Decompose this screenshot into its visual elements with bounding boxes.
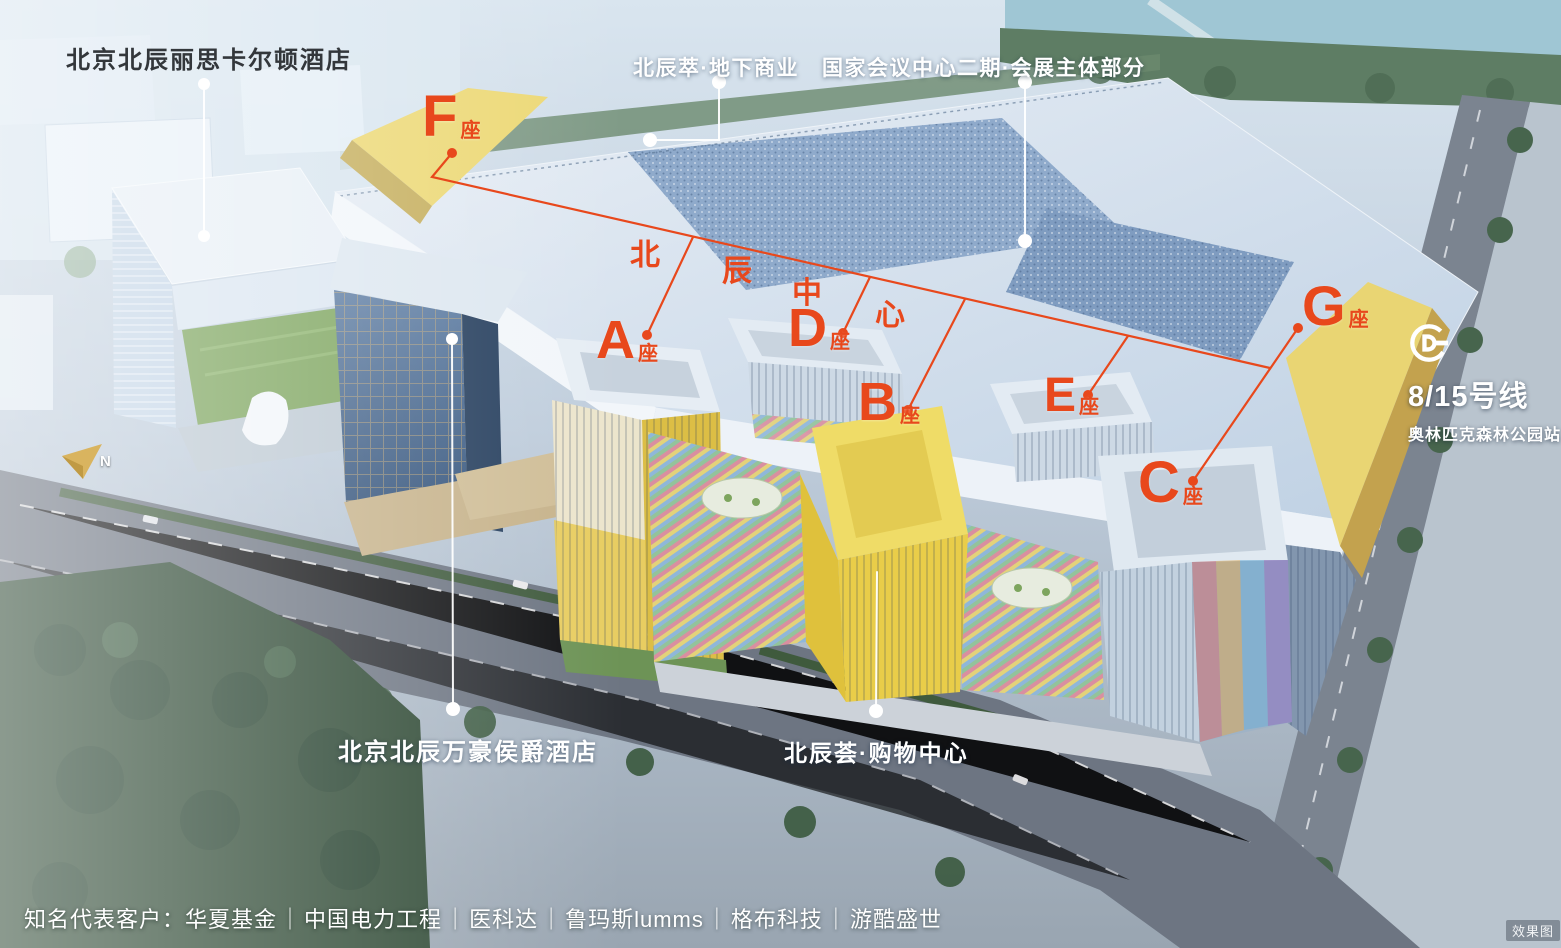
client-name: 格布科技	[731, 907, 823, 932]
building-letter-c: C	[1138, 458, 1180, 507]
subway-line: 8/15号线	[1408, 373, 1561, 415]
building-label-f: F 座	[422, 92, 480, 141]
client-separator: ｜	[444, 907, 467, 932]
label-shopping-mall: 北辰荟·购物中心	[784, 734, 969, 768]
client-separator: ｜	[279, 907, 302, 932]
building-label-c: C 座	[1138, 458, 1203, 507]
building-letter-d: D	[788, 306, 827, 352]
spine-line-f-to-g	[432, 153, 1270, 368]
building-suffix-c: 座	[1183, 487, 1203, 507]
building-label-e: E 座	[1044, 376, 1099, 417]
leader-line-c-g	[1193, 328, 1298, 481]
north-label: N	[100, 453, 111, 470]
client-name: 鲁玛斯lumms	[565, 907, 704, 932]
building-letter-f: F	[422, 92, 457, 141]
building-letter-e: E	[1044, 376, 1076, 417]
aerial-site-rendering: 北京北辰丽思卡尔顿酒店 北辰萃·地下商业 国家会议中心二期·会展主体部分 F 座…	[0, 0, 1561, 948]
building-suffix-g: 座	[1349, 310, 1369, 330]
building-label-g: G 座	[1302, 282, 1369, 330]
client-name: 华夏基金	[185, 907, 277, 932]
label-convention-center: 国家会议中心二期·会展主体部分	[822, 52, 1146, 82]
subway-info: 8/15号线 奥林匹克森林公园站	[1408, 322, 1561, 445]
project-name-char-4: 心	[875, 290, 905, 334]
label-underground-retail: 北辰萃·地下商业	[633, 52, 799, 82]
building-suffix-d: 座	[830, 332, 850, 352]
project-name-char-3: 中	[792, 268, 822, 312]
building-suffix-b: 座	[900, 406, 920, 426]
building-label-b: B 座	[858, 380, 920, 426]
client-name: 游酷盛世	[850, 907, 942, 932]
building-letter-a: A	[596, 318, 635, 364]
clients-prefix: 知名代表客户：	[24, 907, 185, 932]
leader-line-underground	[650, 82, 719, 140]
project-name-char-2: 辰	[722, 246, 752, 290]
leader-line-mall	[876, 572, 877, 711]
building-label-d: D 座	[788, 306, 850, 352]
project-name-char-1: 北	[630, 230, 660, 274]
subway-station: 奥林匹克森林公园站	[1408, 421, 1561, 445]
client-name: 医科达	[469, 907, 538, 932]
client-name: 中国电力工程	[304, 907, 442, 932]
render-watermark: 效果图	[1506, 920, 1560, 941]
beijing-subway-logo-icon	[1408, 322, 1450, 364]
building-letter-b: B	[858, 380, 897, 426]
building-label-a: A 座	[596, 318, 658, 364]
building-letter-g: G	[1302, 282, 1346, 330]
building-suffix-e: 座	[1079, 397, 1099, 417]
building-suffix-f: 座	[460, 121, 480, 141]
client-separator: ｜	[706, 907, 729, 932]
client-separator: ｜	[540, 907, 563, 932]
label-ritz-carlton: 北京北辰丽思卡尔顿酒店	[66, 40, 352, 75]
annotation-lines	[0, 0, 1561, 948]
building-suffix-a: 座	[638, 344, 658, 364]
client-separator: ｜	[825, 907, 848, 932]
clients-bar: 知名代表客户：华夏基金｜中国电力工程｜医科达｜鲁玛斯lumms｜格布科技｜游酷盛…	[24, 902, 942, 934]
leader-line-marriott	[452, 339, 453, 709]
label-marriott: 北京北辰万豪侯爵酒店	[338, 732, 598, 767]
